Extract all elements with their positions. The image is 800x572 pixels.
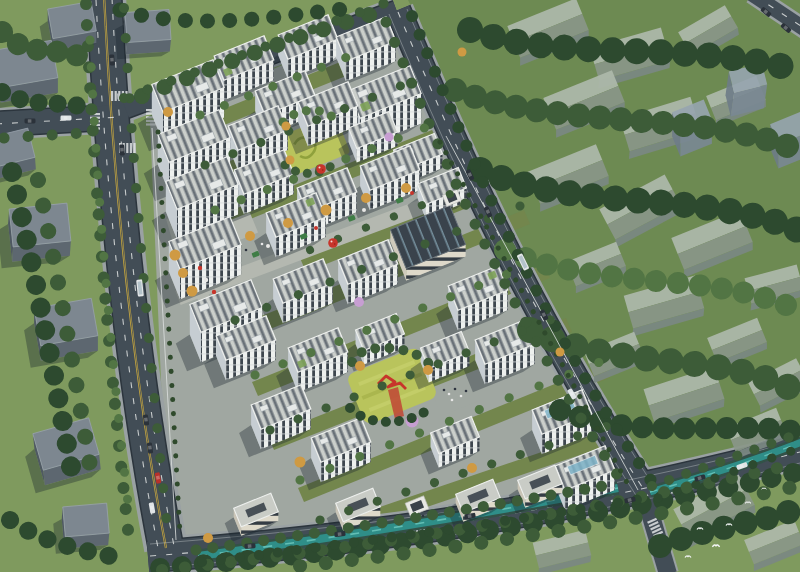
- car: [25, 119, 36, 124]
- red-balloon-sculpture: [328, 238, 338, 248]
- aerial-rendering: [0, 0, 800, 572]
- rendering-svg: [0, 0, 800, 572]
- red-balloon-sculpture: [316, 164, 326, 174]
- car: [244, 543, 255, 549]
- car: [61, 116, 72, 121]
- car: [109, 54, 115, 65]
- car: [119, 144, 125, 155]
